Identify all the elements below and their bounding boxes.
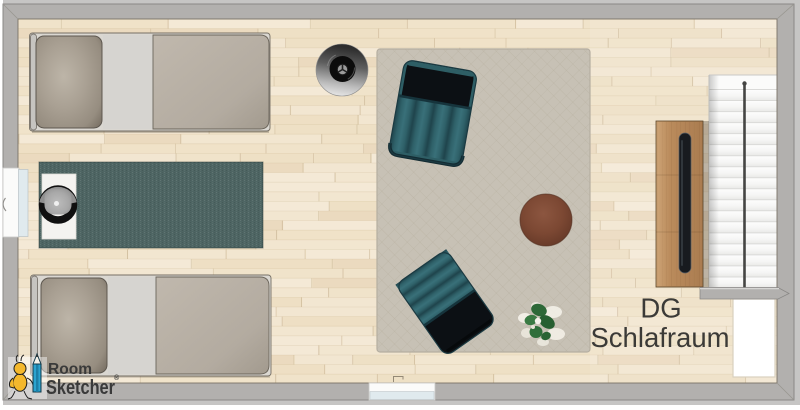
svg-text:DG: DG bbox=[640, 293, 681, 324]
svg-text:Sketcher: Sketcher bbox=[46, 376, 115, 399]
svg-text:®: ® bbox=[114, 374, 120, 382]
svg-text:Schlafraum: Schlafraum bbox=[590, 322, 729, 353]
